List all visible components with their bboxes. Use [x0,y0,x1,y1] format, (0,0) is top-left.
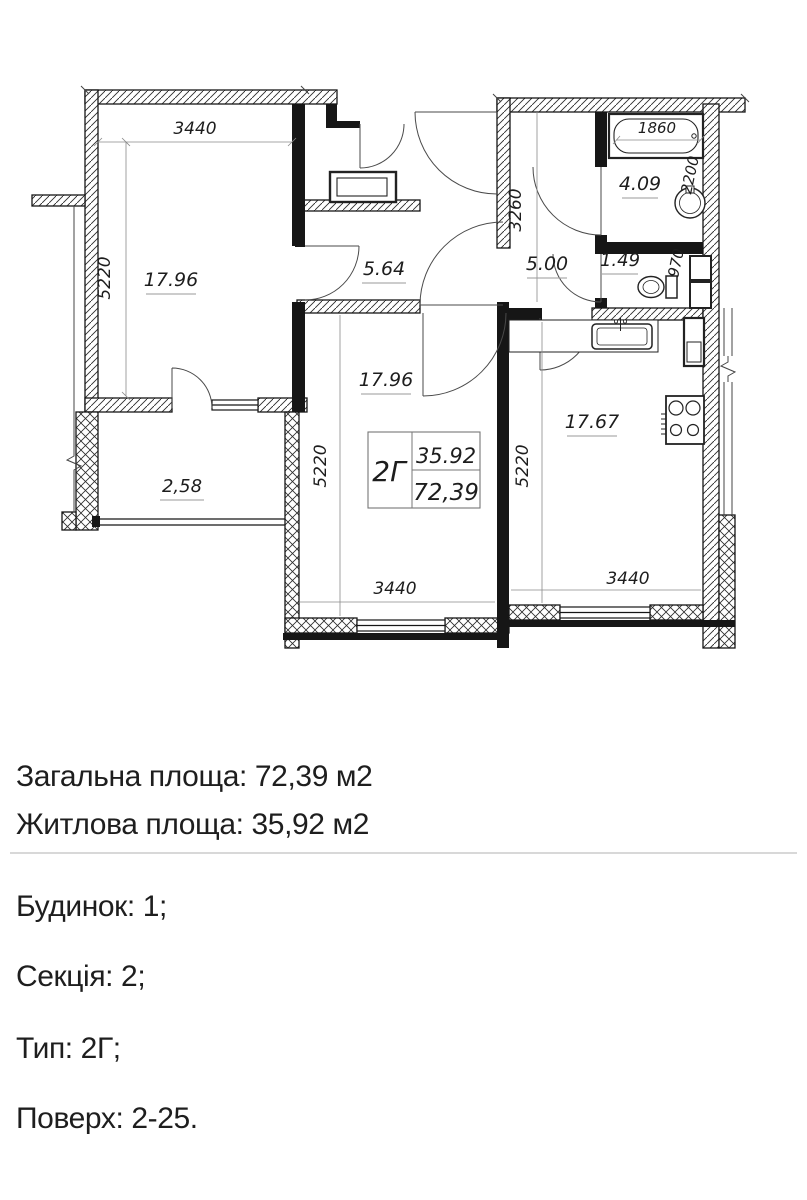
bedroom-width-dim: 3440 [173,119,216,139]
bathroom-area-label: 4.09 [619,173,661,195]
corridor-area-label: 5.00 [526,253,568,275]
type-text: Тип: 2Г; [16,1032,121,1066]
dimension-lines [94,112,704,616]
wardrobe [330,172,396,202]
living-width-dim: 3440 [373,579,416,599]
bedroom-area-label: 17.96 [144,269,198,291]
total-area-text: Загальна площа: 72,39 м2 [16,760,372,794]
toilet [638,276,677,298]
balcony-area-label: 2,58 [162,476,202,497]
living-door-in [423,313,506,396]
balcony-door [172,368,212,408]
page: 2Г 35.92 72,39 17.96 2,58 5.64 17.96 5.0… [0,0,807,1200]
living-door-out [420,222,503,305]
hall-area-label: 5.64 [363,258,405,280]
balcony-railing [98,519,285,525]
kitchen-width-dim: 3440 [606,569,649,589]
kitchen-height-dim: 5220 [513,444,533,487]
building-text: Будинок: 1; [16,890,167,924]
stamp-total-area: 72,39 [413,480,479,506]
living-height-dim: 5220 [311,444,331,487]
kitchen-counter [509,318,658,352]
bathtub-width-dim: 1860 [638,119,676,137]
kitchen-area-label: 17.67 [565,411,619,433]
bathroom-door [533,167,601,235]
floors-text: Поверх: 2-25. [16,1102,198,1136]
kitchen-shaft [684,318,704,366]
bathroom-height-dim: 2200 [677,154,703,195]
bedroom-door [305,246,359,300]
dimension-labels: 3440 5220 5220 3440 3260 5220 3440 1860 … [95,119,703,599]
floor-plan: 2Г 35.92 72,39 17.96 2,58 5.64 17.96 5.0… [0,0,807,690]
living-area-label: 17.96 [359,369,413,391]
wc-shaft [690,256,711,308]
stamp-living-area: 35.92 [416,444,476,468]
stamp-type: 2Г [372,455,408,488]
floor-plan-drawing: 2Г 35.92 72,39 17.96 2,58 5.64 17.96 5.0… [0,0,807,690]
wc-area-label: 1.49 [600,250,640,271]
living-area-text: Житлова площа: 35,92 м2 [16,808,369,842]
stove [661,396,704,444]
bedroom-height-dim: 5220 [95,256,115,299]
entry-door [415,112,497,194]
section-text: Секція: 2; [16,960,145,994]
corridor-height-dim: 3260 [506,188,526,231]
divider [10,852,797,854]
apartment-stamp: 2Г 35.92 72,39 [368,432,480,508]
niche-door [360,124,404,168]
